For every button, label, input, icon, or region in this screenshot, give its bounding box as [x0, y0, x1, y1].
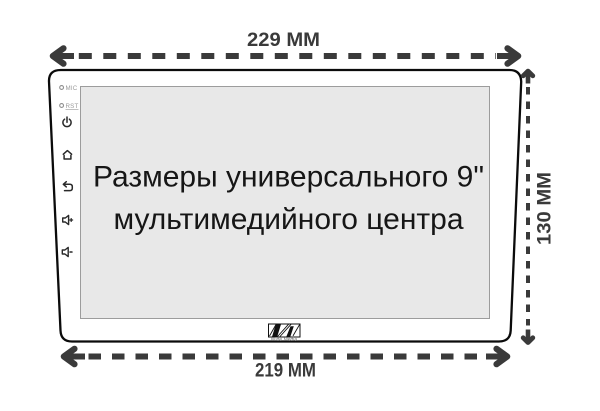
svg-text:219 MM: 219 MM: [255, 360, 316, 382]
svg-text:RST: RST: [66, 103, 79, 110]
svg-text:Wide Media: Wide Media: [271, 337, 298, 343]
svg-text:Размеры универсального 9": Размеры универсального 9": [93, 161, 484, 194]
svg-text:130 MM: 130 MM: [533, 172, 555, 245]
svg-text:MIC: MIC: [66, 85, 78, 92]
svg-text:мультимедийного центра: мультимедийного центра: [113, 203, 463, 236]
svg-text:229 MM: 229 MM: [247, 29, 320, 51]
